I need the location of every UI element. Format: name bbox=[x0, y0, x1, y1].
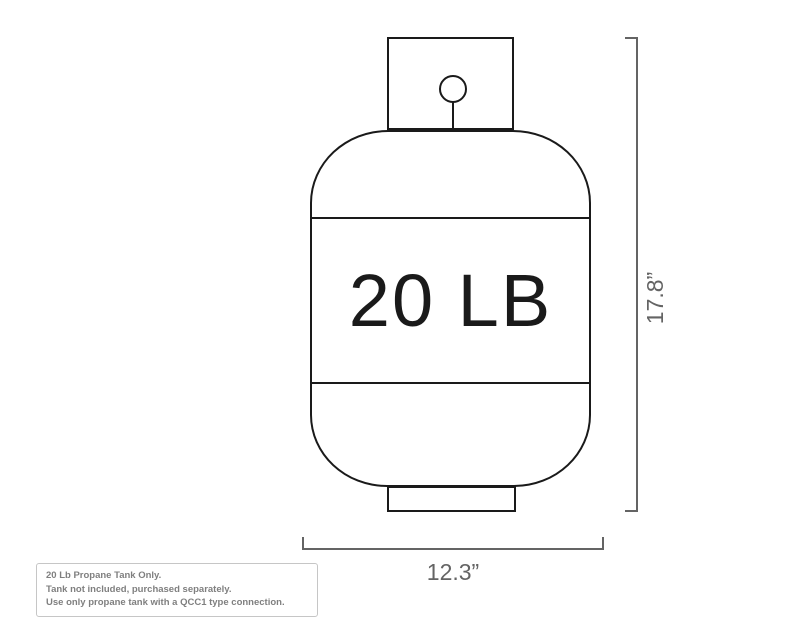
note-line-qcc1: Use only propane tank with a QCC1 type c… bbox=[46, 596, 308, 610]
tank-label-band-bottom-line bbox=[311, 382, 590, 384]
height-dimension-line bbox=[636, 37, 638, 512]
height-dimension-tick-top bbox=[625, 37, 638, 39]
width-dimension-line bbox=[302, 548, 604, 550]
width-dimension-tick-left bbox=[302, 537, 304, 550]
tank-valve-stem bbox=[452, 102, 454, 131]
width-dimension-label: 12.3” bbox=[403, 559, 503, 585]
height-dimension-label: 17.8” bbox=[640, 256, 670, 340]
note-line-tank-only: 20 Lb Propane Tank Only. bbox=[46, 569, 308, 583]
tank-capacity-label: 20 LB bbox=[310, 219, 591, 382]
tank-valve-knob-icon bbox=[439, 75, 467, 103]
note-line-not-included: Tank not included, purchased separately. bbox=[46, 583, 308, 597]
note-box: 20 Lb Propane Tank Only. Tank not includ… bbox=[36, 563, 318, 617]
tank-foot-ring bbox=[387, 486, 516, 512]
height-dimension-tick-bottom bbox=[625, 510, 638, 512]
width-dimension-tick-right bbox=[602, 537, 604, 550]
propane-tank-dimension-diagram: 20 LB 17.8” 12.3” 20 Lb Propane Tank Onl… bbox=[0, 0, 800, 632]
